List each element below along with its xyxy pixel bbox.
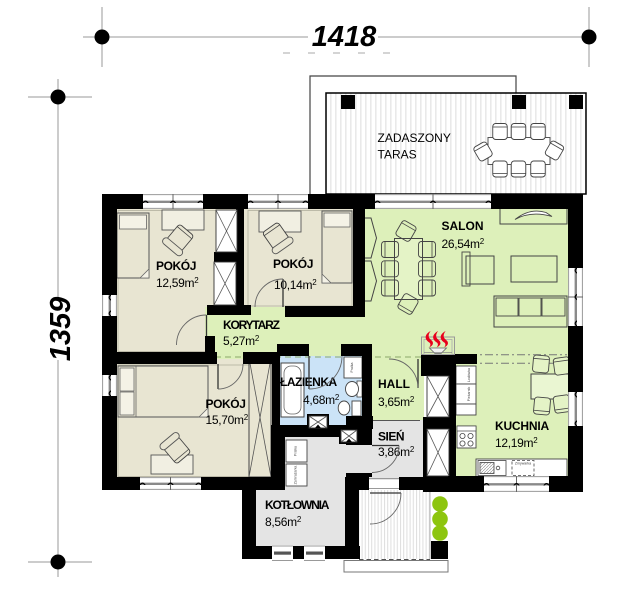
svg-text:26,54m2: 26,54m2	[442, 237, 485, 251]
svg-text:SIEŃ: SIEŃ	[378, 429, 404, 444]
svg-text:12,59m2: 12,59m2	[156, 276, 199, 290]
svg-text:Zamrażarka: Zamrażarka	[294, 466, 298, 485]
svg-text:Piekarnik: Piekarnik	[467, 387, 471, 402]
svg-text:12,19m2: 12,19m2	[495, 436, 538, 450]
svg-text:1418: 1418	[312, 21, 377, 53]
svg-text:POKÓJ: POKÓJ	[206, 396, 246, 411]
svg-text:Lodówka: Lodówka	[467, 368, 471, 382]
svg-text:10,14m2: 10,14m2	[274, 278, 317, 292]
svg-text:Pralka: Pralka	[350, 362, 354, 372]
svg-text:5,27m2: 5,27m2	[223, 334, 260, 348]
svg-text:Pralka: Pralka	[294, 446, 298, 456]
svg-text:SALON: SALON	[442, 219, 484, 233]
svg-text:15,70m2: 15,70m2	[206, 413, 249, 427]
svg-text:1359: 1359	[45, 297, 77, 362]
svg-text:KORYTARZ: KORYTARZ	[223, 318, 280, 332]
svg-text:HALL: HALL	[378, 377, 410, 391]
svg-text:KUCHNIA: KUCHNIA	[495, 419, 549, 433]
svg-text:POKÓJ: POKÓJ	[156, 258, 196, 273]
svg-text:Zmywarka: Zmywarka	[515, 462, 531, 466]
svg-text:ZADASZONY: ZADASZONY	[378, 131, 451, 145]
svg-text:POKÓJ: POKÓJ	[273, 256, 313, 271]
svg-text:TARAS: TARAS	[378, 148, 417, 162]
svg-text:3,65m2: 3,65m2	[378, 395, 415, 409]
svg-text:8,56m2: 8,56m2	[265, 515, 302, 529]
svg-text:4,68m2: 4,68m2	[303, 393, 340, 407]
svg-text:KOTŁOWNIA: KOTŁOWNIA	[265, 498, 330, 512]
